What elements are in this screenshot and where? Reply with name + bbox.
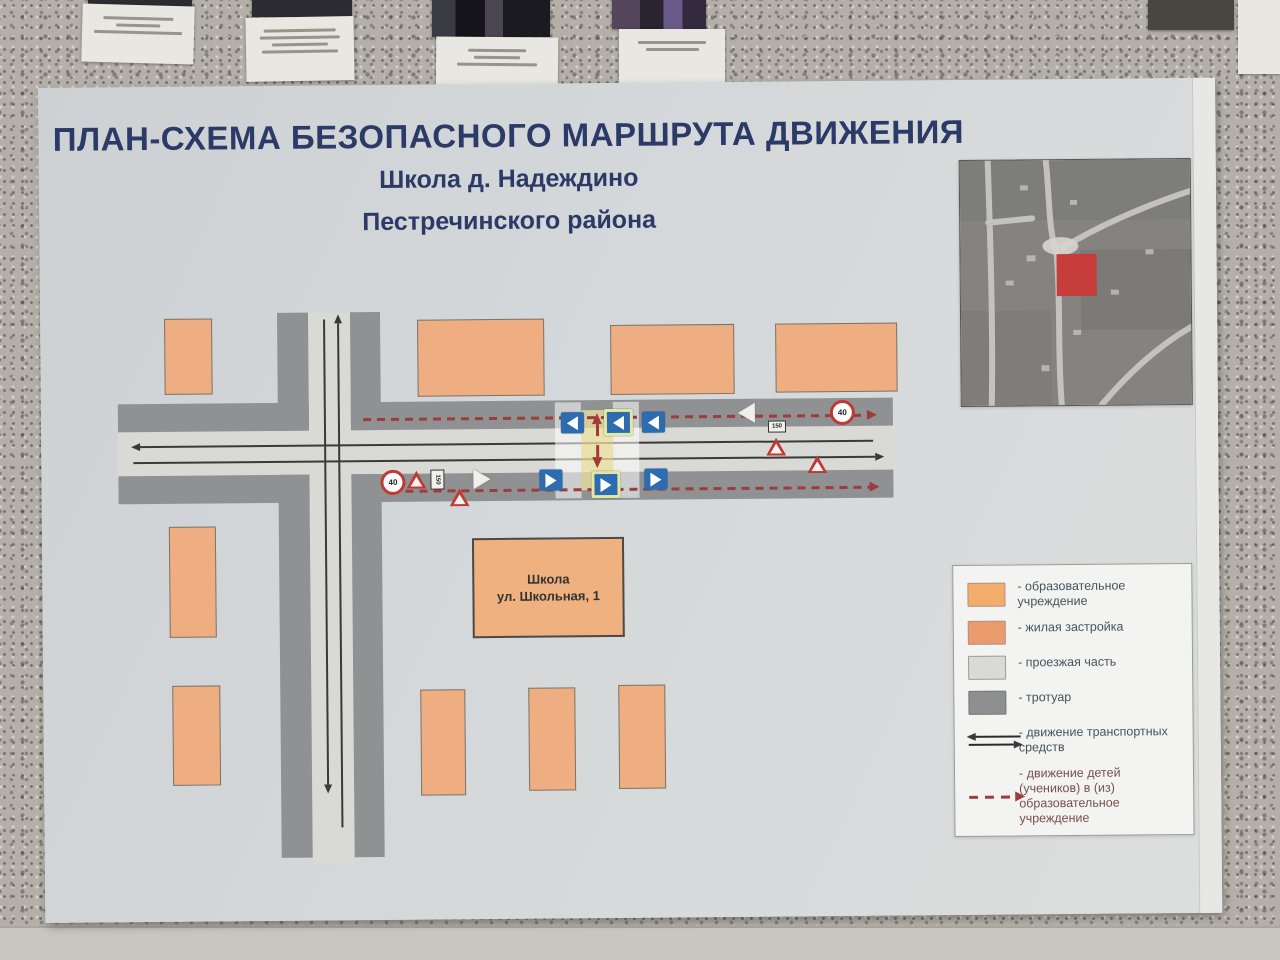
legend-item-roadway: - проезжая часть <box>968 654 1182 680</box>
illegible-caption-line <box>94 30 181 35</box>
sidewalk-vertical-right-lower <box>351 474 384 857</box>
legend-arrow-right <box>1014 740 1023 748</box>
traffic-arrow-east <box>875 453 884 461</box>
residential-building <box>164 318 213 394</box>
photo-fragment <box>1148 0 1234 30</box>
speed-limit-value: 40 <box>388 478 397 487</box>
illegible-caption-line <box>260 35 340 39</box>
residential-building <box>420 689 466 795</box>
poster-title-line3: Пестречинского района <box>49 196 969 246</box>
photo-fragment <box>432 0 550 37</box>
photo-caption-card <box>619 29 725 87</box>
distance-plate-150: 150 <box>430 469 444 489</box>
legend-item-vehicle-traffic: - движение транспортных средств <box>969 724 1183 756</box>
children-route-bottom-arrow <box>869 482 879 492</box>
roadway-swatch <box>968 656 1006 680</box>
children-route-stem <box>596 445 599 457</box>
photo-caption-card <box>1238 0 1280 74</box>
legend: - образовательное учреждение - жилая зас… <box>952 563 1194 837</box>
pedestrian-sign-triangle <box>600 478 611 492</box>
legend-label: - жилая застройка <box>1018 619 1182 644</box>
illegible-caption-line <box>104 16 173 21</box>
children-route-stem <box>596 424 599 436</box>
pedestrian-crossing-sign-yellow-border <box>591 471 620 498</box>
sidewalk-vertical-right-upper <box>350 312 381 430</box>
residential-swatch <box>968 621 1006 645</box>
pedestrian-crossing-sign <box>561 412 584 433</box>
satellite-graphic <box>960 159 1192 406</box>
illegible-caption-line <box>457 63 538 67</box>
residential-building <box>172 685 221 785</box>
speed-limit-40-sign: 40 <box>830 400 855 425</box>
legend-item-children-route: - движение детей (учеников) в (из) образ… <box>969 765 1184 827</box>
distance-value: 150 <box>434 474 440 484</box>
education-swatch <box>967 583 1005 607</box>
poster-title-line1: ПЛАН-СХЕМА БЕЗОПАСНОГО МАРШРУТА ДВИЖЕНИЯ <box>48 110 968 162</box>
legend-label: - проезжая часть <box>1018 654 1182 679</box>
sidewalk-vertical-left-upper <box>277 313 309 431</box>
illegible-caption-line <box>262 49 338 53</box>
residential-building <box>610 324 735 395</box>
pedestrian-crossing-sign <box>644 469 667 490</box>
legend-item-residential: - жилая застройка <box>968 619 1182 645</box>
children-route-dashed-arrow-icon <box>969 766 1020 826</box>
pedestrian-sign-triangle <box>648 415 659 429</box>
traffic-arrow-north <box>334 314 342 323</box>
illegible-caption-line <box>116 23 161 27</box>
photo-caption-card <box>81 4 194 65</box>
sidewalk-swatch <box>968 691 1006 715</box>
legend-item-sidewalk: - тротуар <box>968 689 1182 715</box>
legend-label: - тротуар <box>1018 689 1182 714</box>
residential-building <box>417 319 545 397</box>
speed-limit-40-sign: 40 <box>380 470 405 495</box>
residential-building <box>618 685 666 789</box>
vehicle-traffic-arrows-icon <box>969 725 1019 755</box>
illegible-caption-line <box>646 48 699 51</box>
speed-limit-value: 40 <box>838 408 847 417</box>
illegible-caption-line <box>272 43 328 47</box>
pedestrian-crossing-sign <box>539 469 562 490</box>
poster-title: ПЛАН-СХЕМА БЕЗОПАСНОГО МАРШРУТА ДВИЖЕНИЯ… <box>48 110 969 246</box>
illegible-caption-line <box>468 49 527 53</box>
school-label-line1: Школа <box>527 570 570 587</box>
photo-caption-card <box>245 16 354 82</box>
children-route-arrow-down <box>592 457 602 468</box>
direction-triangle-sign <box>738 403 755 423</box>
distance-plate-150: 150 <box>768 420 786 432</box>
photo-fragment <box>252 0 352 17</box>
school-building: Школа ул. Школьная, 1 <box>472 537 625 638</box>
road-vertical-carriageway <box>308 312 355 865</box>
traffic-arrow-west <box>131 443 140 451</box>
legend-arrow-left <box>967 733 976 741</box>
photo-of-wall-board: ПЛАН-СХЕМА БЕЗОПАСНОГО МАРШРУТА ДВИЖЕНИЯ… <box>0 0 1280 960</box>
legend-dashed-arrowhead <box>1015 791 1025 801</box>
pedestrian-sign-triangle <box>545 473 556 487</box>
satellite-image <box>959 158 1193 407</box>
children-route-top-arrow <box>867 410 877 420</box>
illegible-caption-line <box>264 28 335 32</box>
pedestrian-sign-triangle <box>650 472 661 486</box>
residential-building <box>528 687 576 790</box>
direction-triangle-sign <box>473 469 490 489</box>
illegible-caption-line <box>474 56 520 59</box>
legend-label: - движение детей (учеников) в (из) образ… <box>1019 765 1184 826</box>
illegible-caption-line <box>638 41 706 44</box>
route-plan-poster: ПЛАН-СХЕМА БЕЗОПАСНОГО МАРШРУТА ДВИЖЕНИЯ… <box>38 78 1222 923</box>
school-label-line2: ул. Школьная, 1 <box>497 587 600 605</box>
pedestrian-crossing-sign <box>642 412 665 433</box>
sidewalk-vertical-left-lower <box>278 475 312 858</box>
legend-label: - образовательное учреждение <box>1017 578 1181 609</box>
residential-building <box>169 526 217 637</box>
pedestrian-sign-triangle <box>567 416 578 430</box>
distance-value: 150 <box>772 424 782 430</box>
school-location-marker <box>1056 254 1096 296</box>
pedestrian-sign-triangle <box>613 415 624 429</box>
legend-label: - движение транспортных средств <box>1019 724 1183 755</box>
legend-item-education: - образовательное учреждение <box>967 578 1181 610</box>
wall-ledge <box>0 926 1280 960</box>
residential-building <box>775 323 898 393</box>
traffic-arrow-south <box>324 784 332 793</box>
photo-fragment <box>612 0 706 29</box>
poster-paper-edge <box>1192 78 1222 913</box>
pedestrian-crossing-sign-yellow-border <box>604 409 633 436</box>
